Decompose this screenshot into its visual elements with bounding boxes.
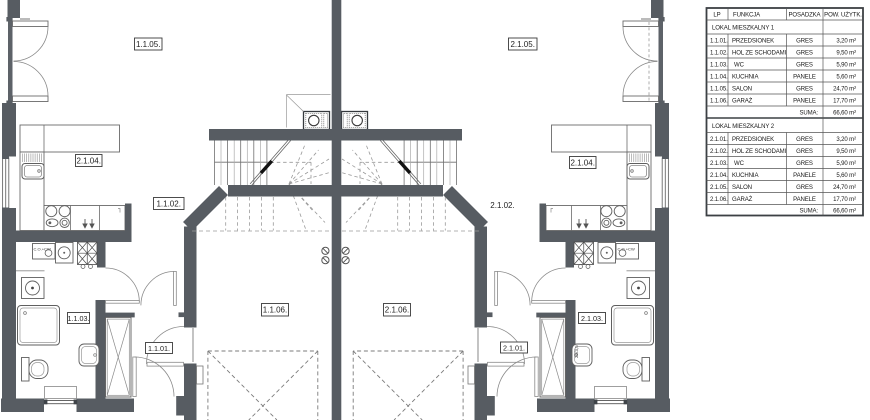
svg-text:3,20 m²: 3,20 m² bbox=[836, 39, 856, 45]
svg-text:PANELE: PANELE bbox=[793, 197, 816, 203]
svg-text:GARAŻ: GARAŻ bbox=[732, 98, 753, 105]
svg-text:2.1.06.: 2.1.06. bbox=[385, 306, 409, 315]
svg-text:2.1.05.: 2.1.05. bbox=[710, 185, 728, 191]
svg-text:PRZEDSIONEK: PRZEDSIONEK bbox=[732, 137, 774, 143]
svg-text:1.1.01.: 1.1.01. bbox=[710, 39, 728, 45]
svg-text:GRES: GRES bbox=[796, 137, 813, 143]
svg-text:WC: WC bbox=[734, 161, 745, 167]
svg-text:17,70 m²: 17,70 m² bbox=[833, 197, 856, 203]
svg-text:2.1.04.: 2.1.04. bbox=[710, 173, 728, 179]
svg-text:1.1.06.: 1.1.06. bbox=[263, 306, 287, 315]
svg-text:5,60 m²: 5,60 m² bbox=[836, 173, 856, 179]
svg-text:1.1.05.: 1.1.05. bbox=[710, 87, 728, 93]
svg-text:GRES: GRES bbox=[796, 149, 813, 155]
svg-text:PANELE: PANELE bbox=[793, 99, 816, 105]
svg-text:17,70 m²: 17,70 m² bbox=[833, 99, 856, 105]
svg-text:HOL ZE SCHODAMI: HOL ZE SCHODAMI bbox=[732, 149, 787, 155]
svg-text:SUMA:: SUMA: bbox=[799, 209, 818, 215]
svg-text:FUNKCJA: FUNKCJA bbox=[733, 13, 761, 19]
svg-text:LP: LP bbox=[713, 13, 720, 19]
svg-text:2.1.04.: 2.1.04. bbox=[76, 157, 100, 166]
svg-text:1.1.02.: 1.1.02. bbox=[156, 200, 180, 209]
svg-text:1.1.02.: 1.1.02. bbox=[710, 51, 728, 57]
svg-text:GRES: GRES bbox=[796, 161, 813, 167]
svg-text:GRES: GRES bbox=[796, 87, 813, 93]
svg-text:1.1.03.: 1.1.03. bbox=[68, 314, 90, 323]
svg-text:5,90 m²: 5,90 m² bbox=[836, 63, 856, 69]
svg-text:1.1.05.: 1.1.05. bbox=[136, 40, 160, 49]
svg-text:HOL ZE SCHODAMI: HOL ZE SCHODAMI bbox=[732, 51, 787, 57]
svg-text:SALON: SALON bbox=[732, 87, 752, 93]
svg-text:2.1.01.: 2.1.01. bbox=[710, 137, 728, 143]
svg-text:LOKAL MIESZKALNY 1: LOKAL MIESZKALNY 1 bbox=[712, 26, 775, 32]
svg-text:GRES: GRES bbox=[796, 51, 813, 57]
svg-text:5,90 m²: 5,90 m² bbox=[836, 161, 856, 167]
svg-text:POSADZKA: POSADZKA bbox=[789, 13, 822, 19]
svg-text:9,50 m²: 9,50 m² bbox=[836, 51, 856, 57]
svg-text:POW. UŻYTK.: POW. UŻYTK. bbox=[824, 12, 862, 19]
svg-text:1.1.04.: 1.1.04. bbox=[710, 75, 728, 81]
svg-text:2.1.03.: 2.1.03. bbox=[710, 161, 728, 167]
svg-text:5,60 m²: 5,60 m² bbox=[836, 75, 856, 81]
svg-text:C.O.+CW: C.O.+CW bbox=[618, 247, 635, 252]
svg-text:PRZEDSIONEK: PRZEDSIONEK bbox=[732, 39, 774, 45]
svg-text:9,50 m²: 9,50 m² bbox=[836, 149, 856, 155]
svg-text:GRES: GRES bbox=[796, 185, 813, 191]
svg-text:2.1.02.: 2.1.02. bbox=[710, 149, 728, 155]
svg-text:2.1.02.: 2.1.02. bbox=[490, 201, 514, 210]
svg-text:SALON: SALON bbox=[732, 185, 752, 191]
svg-text:WC: WC bbox=[734, 63, 745, 69]
svg-text:66,60 m²: 66,60 m² bbox=[833, 111, 856, 117]
svg-text:KUCHNIA: KUCHNIA bbox=[732, 75, 759, 81]
svg-text:KUCHNIA: KUCHNIA bbox=[732, 173, 759, 179]
svg-text:GARAŻ: GARAŻ bbox=[732, 196, 753, 203]
svg-text:C.O.+CW: C.O.+CW bbox=[34, 247, 51, 252]
svg-text:2.1.04.: 2.1.04. bbox=[570, 159, 594, 168]
svg-text:24,70 m²: 24,70 m² bbox=[833, 185, 856, 191]
svg-text:20/3,5: 20/3,5 bbox=[574, 345, 579, 358]
svg-text:PANELE: PANELE bbox=[793, 173, 816, 179]
svg-text:66,60 m²: 66,60 m² bbox=[833, 209, 856, 215]
svg-text:24,70 m²: 24,70 m² bbox=[833, 87, 856, 93]
svg-text:3,20 m²: 3,20 m² bbox=[836, 137, 856, 143]
svg-text:2.1.03.: 2.1.03. bbox=[581, 314, 603, 323]
svg-text:1.1.01.: 1.1.01. bbox=[148, 344, 170, 353]
svg-text:2.1.01.: 2.1.01. bbox=[503, 344, 525, 353]
svg-text:GRES: GRES bbox=[796, 39, 813, 45]
svg-text:LOKAL MIESZKALNY 2: LOKAL MIESZKALNY 2 bbox=[712, 124, 775, 130]
svg-text:2.1.05.: 2.1.05. bbox=[510, 40, 534, 49]
svg-text:1.1.06.: 1.1.06. bbox=[710, 99, 728, 105]
svg-text:2.1.06.: 2.1.06. bbox=[710, 197, 728, 203]
svg-text:PANELE: PANELE bbox=[793, 75, 816, 81]
svg-text:1.1.03.: 1.1.03. bbox=[710, 63, 728, 69]
svg-text:GRES: GRES bbox=[796, 63, 813, 69]
svg-text:SUMA:: SUMA: bbox=[799, 111, 818, 117]
